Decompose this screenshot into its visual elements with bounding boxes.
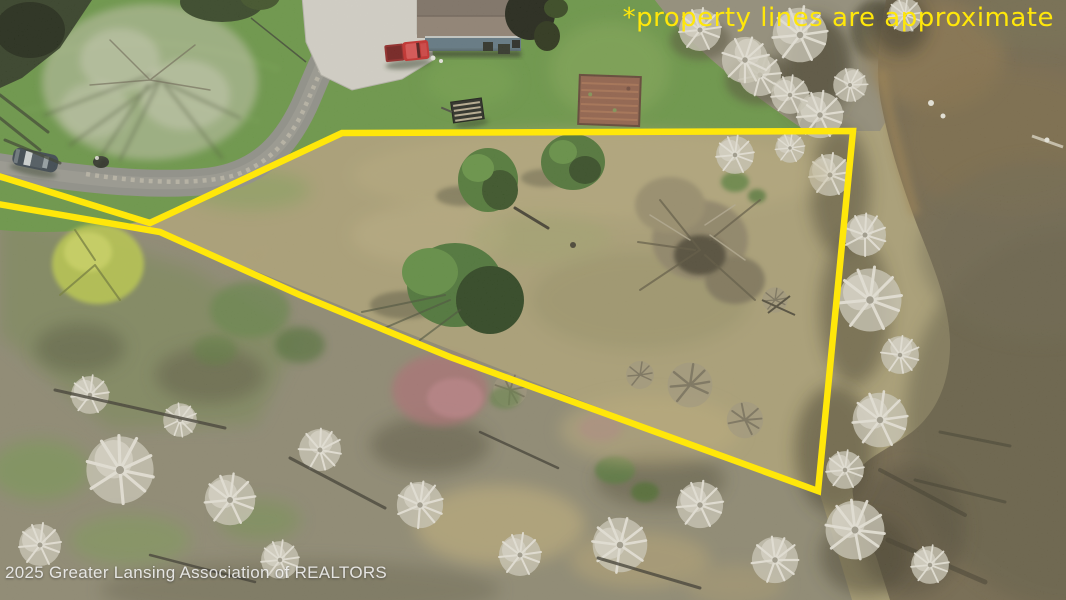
listing-photo: *property lines are approximate 2025 Gre… <box>0 0 1066 600</box>
aerial-photo <box>0 0 1066 600</box>
texture-grain <box>0 0 1066 600</box>
watermark-text: 2025 Greater Lansing Association of REAL… <box>5 563 387 583</box>
disclaimer-text: *property lines are approximate <box>623 3 1054 33</box>
